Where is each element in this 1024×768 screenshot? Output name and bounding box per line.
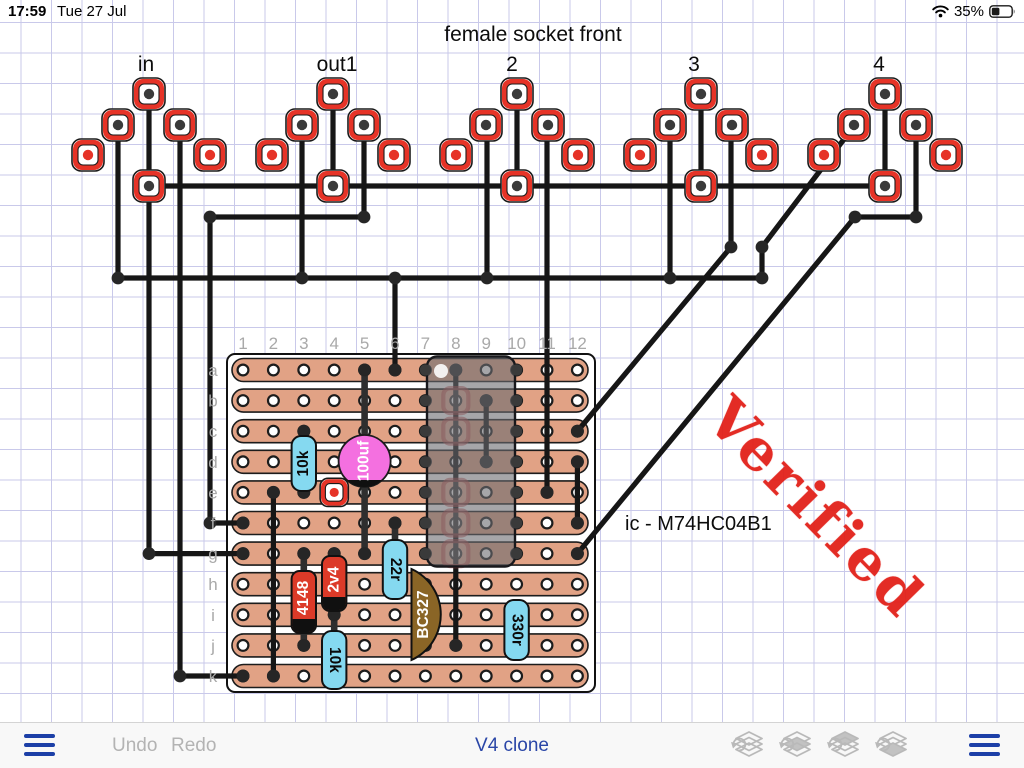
socket-group-label: 3 [688,53,700,76]
column-label: 9 [481,334,490,353]
ic-pin [420,517,431,528]
socket-pad[interactable] [930,139,962,171]
column-label: 8 [451,334,460,353]
column-label: 4 [329,334,338,353]
ic-pin [511,548,522,559]
board-hole[interactable] [542,640,553,651]
status-bar: 17:59 Tue 27 Jul 35% [0,0,1024,22]
board-hole[interactable] [390,487,401,498]
board-hole[interactable] [238,640,249,651]
component-10k[interactable]: 10k [292,436,316,491]
component-100uf[interactable]: 100uf [339,435,391,487]
copper-strip [232,634,588,657]
socket-pad[interactable] [164,109,196,141]
board-hole[interactable] [238,579,249,590]
battery-percent: 35% [954,3,984,20]
row-label: f [211,514,216,533]
layer-lower-button[interactable] [826,731,860,761]
row-label: h [208,575,217,594]
board-hole[interactable] [329,426,340,437]
row-label: e [208,483,217,502]
ic-pin [511,395,522,406]
socket-pad[interactable] [320,478,348,506]
junction-dot [449,639,462,652]
ic-pin [420,364,431,375]
board-hole[interactable] [238,365,249,376]
board-hole[interactable] [420,671,431,682]
socket-pad[interactable] [194,139,226,171]
component-4148[interactable]: 4148 [292,571,316,633]
component-label: 2v4 [325,566,342,592]
junction-dot [174,670,187,683]
row-label: i [211,606,215,625]
junction-dot [358,211,371,224]
board-hole[interactable] [542,609,553,620]
junction-dot [664,272,677,285]
column-label: 7 [421,334,430,353]
socket-pad[interactable] [470,109,502,141]
socket-pad[interactable] [562,139,594,171]
board-hole[interactable] [542,548,553,559]
clock-time: 17:59 [8,3,46,20]
socket-pad[interactable] [624,139,656,171]
row-label: k [209,667,218,686]
column-label: 1 [238,334,247,353]
socket-pad[interactable] [378,139,410,171]
junction-dot [358,547,371,560]
junction-dot [143,547,156,560]
component-label: 10k [326,647,343,673]
socket-pad[interactable] [716,109,748,141]
socket-pad[interactable] [685,78,717,110]
junction-dot [204,211,217,224]
junction-dot [756,241,769,254]
board-hole[interactable] [298,365,309,376]
junction-dot [389,272,402,285]
junction-dot [237,670,250,683]
column-label: 3 [299,334,308,353]
layer-raise-to-top-button[interactable] [730,731,764,761]
board-hole[interactable] [268,365,279,376]
board-hole[interactable] [238,487,249,498]
junction-dot [297,547,310,560]
ic-pin [511,517,522,528]
junction-dot [267,486,280,499]
battery-icon [989,5,1016,18]
row-label: g [208,545,217,564]
component-label: 100uf [356,440,373,481]
board-hole[interactable] [542,518,553,529]
ic-pin [420,395,431,406]
board-hole[interactable] [298,518,309,529]
socket-pad[interactable] [501,170,533,202]
copper-strip [232,512,588,535]
board-hole[interactable] [572,640,583,651]
board-hole[interactable] [238,426,249,437]
component-label: 22r [387,558,404,581]
socket-pad[interactable] [317,170,349,202]
board-hole[interactable] [298,395,309,406]
board-hole[interactable] [390,609,401,620]
copper-strip [232,665,588,688]
board-hole[interactable] [542,579,553,590]
copper-strip [232,542,588,565]
socket-pad[interactable] [808,139,840,171]
ic-overlay[interactable] [420,357,522,567]
ic-pin [511,487,522,498]
column-label: 2 [269,334,278,353]
component-330r[interactable]: 330r [504,600,528,660]
junction-dot [481,272,494,285]
ic-pin1-marker [434,364,448,378]
socket-pad[interactable] [685,170,717,202]
copper-strip [232,603,588,626]
board-hole[interactable] [268,426,279,437]
copper-strip [232,359,588,382]
row-label: c [209,422,218,441]
board-hole[interactable] [238,609,249,620]
board-hole[interactable] [481,640,492,651]
ic-pin [511,456,522,467]
board-hole[interactable] [481,609,492,620]
board-hole[interactable] [268,456,279,467]
board-hole[interactable] [450,671,461,682]
junction-dot [571,517,584,530]
board-hole[interactable] [572,609,583,620]
ic-pin [511,426,522,437]
board-hole[interactable] [329,365,340,376]
board-hole[interactable] [572,365,583,376]
junction-dot [237,517,250,530]
socket-pad[interactable] [440,139,472,171]
component-pad[interactable] [320,478,348,506]
socket-pad[interactable] [501,78,533,110]
junction-dot [296,272,309,285]
board-hole[interactable] [572,579,583,590]
row-label: d [208,453,217,472]
wifi-icon [932,5,949,18]
ic-part-label: ic - M74HC04B1 [625,513,772,535]
wire[interactable] [577,125,916,554]
board-hole[interactable] [511,671,522,682]
component-label: 330r [509,614,526,646]
socket-pad[interactable] [532,109,564,141]
socket-pad[interactable] [286,109,318,141]
board-hole[interactable] [359,671,370,682]
ic-pin [420,456,431,467]
board-hole[interactable] [511,579,522,590]
board-hole[interactable] [238,456,249,467]
board-hole[interactable] [359,609,370,620]
junction-dot [358,364,371,377]
board-hole[interactable] [268,395,279,406]
board-hole[interactable] [238,395,249,406]
socket-pad[interactable] [317,78,349,110]
socket-group-label: in [138,53,154,76]
board-hole[interactable] [390,395,401,406]
column-label: 5 [360,334,369,353]
socket-group-label: 2 [506,53,518,76]
socket-pad[interactable] [746,139,778,171]
socket-pad[interactable] [102,109,134,141]
junction-dot [910,211,923,224]
socket-pad[interactable] [133,78,165,110]
socket-pad[interactable] [348,109,380,141]
diagram-title: female socket front [444,23,622,46]
component-label: 4148 [295,580,312,615]
ic-pin [511,364,522,375]
board-hole[interactable] [390,640,401,651]
junction-dot [571,547,584,560]
board-hole[interactable] [572,671,583,682]
junction-dot [541,486,554,499]
board-hole[interactable] [390,426,401,437]
junction-dot [267,670,280,683]
junction-dot [756,272,769,285]
ic-body[interactable] [427,357,515,567]
junction-dot [237,547,250,560]
junction-dot [389,517,402,530]
ic-pin [420,548,431,559]
bottom-toolbar: Undo Redo V4 clone [0,722,1024,768]
socket-pad[interactable] [869,78,901,110]
column-label: 12 [568,334,587,353]
copper-strip [232,573,588,596]
socket-pad[interactable] [900,109,932,141]
junction-dot [849,211,862,224]
junction-dot [571,425,584,438]
board-hole[interactable] [329,395,340,406]
board-hole[interactable] [542,671,553,682]
junction-dot [389,364,402,377]
row-label: j [210,636,215,655]
copper-strip [232,420,588,443]
copper-strip [232,450,588,473]
board-hole[interactable] [359,579,370,590]
junction-dot [112,272,125,285]
board-hole[interactable] [298,671,309,682]
layer-raise-button[interactable] [778,731,812,761]
ic-pin [420,426,431,437]
socket-pad[interactable] [256,139,288,171]
component-22r[interactable]: 22r [383,540,407,599]
socket-pad[interactable] [654,109,686,141]
column-label: 11 [538,334,556,353]
board-hole[interactable] [329,518,340,529]
socket-pad[interactable] [133,170,165,202]
socket-pad[interactable] [72,139,104,171]
column-label: 6 [390,334,399,353]
component-label: 10k [295,450,312,476]
row-label: b [208,392,217,411]
layer-lower-to-bottom-button[interactable] [874,731,908,761]
layer-buttons [730,731,908,761]
socket-group-label: out1 [317,53,358,76]
board-hole[interactable] [481,671,492,682]
component-2v4[interactable]: 2v4 [322,556,346,611]
component-10k[interactable]: 10k [322,631,346,689]
copper-strip [232,481,588,504]
ic-pin [420,487,431,498]
socket-group-label: 4 [873,53,885,76]
row-label: a [208,361,218,380]
layout-canvas[interactable]: 10k100uf41482v422rBC327330r10k female so… [0,0,1024,768]
junction-dot [571,455,584,468]
socket-pad[interactable] [838,109,870,141]
component-label: BC327 [415,590,432,638]
board-hole[interactable] [572,395,583,406]
app-screen: 17:59 Tue 27 Jul 35% 10k100uf41482v422rB… [0,0,1024,768]
column-label: 10 [507,334,526,353]
junction-dot [725,241,738,254]
board-hole[interactable] [390,671,401,682]
board-hole[interactable] [481,579,492,590]
copper-strip [232,389,588,412]
board-hole[interactable] [359,640,370,651]
junction-dot [297,639,310,652]
clock-date: Tue 27 Jul [57,3,127,20]
menu-icon-right[interactable] [969,734,1000,756]
socket-pad[interactable] [869,170,901,202]
